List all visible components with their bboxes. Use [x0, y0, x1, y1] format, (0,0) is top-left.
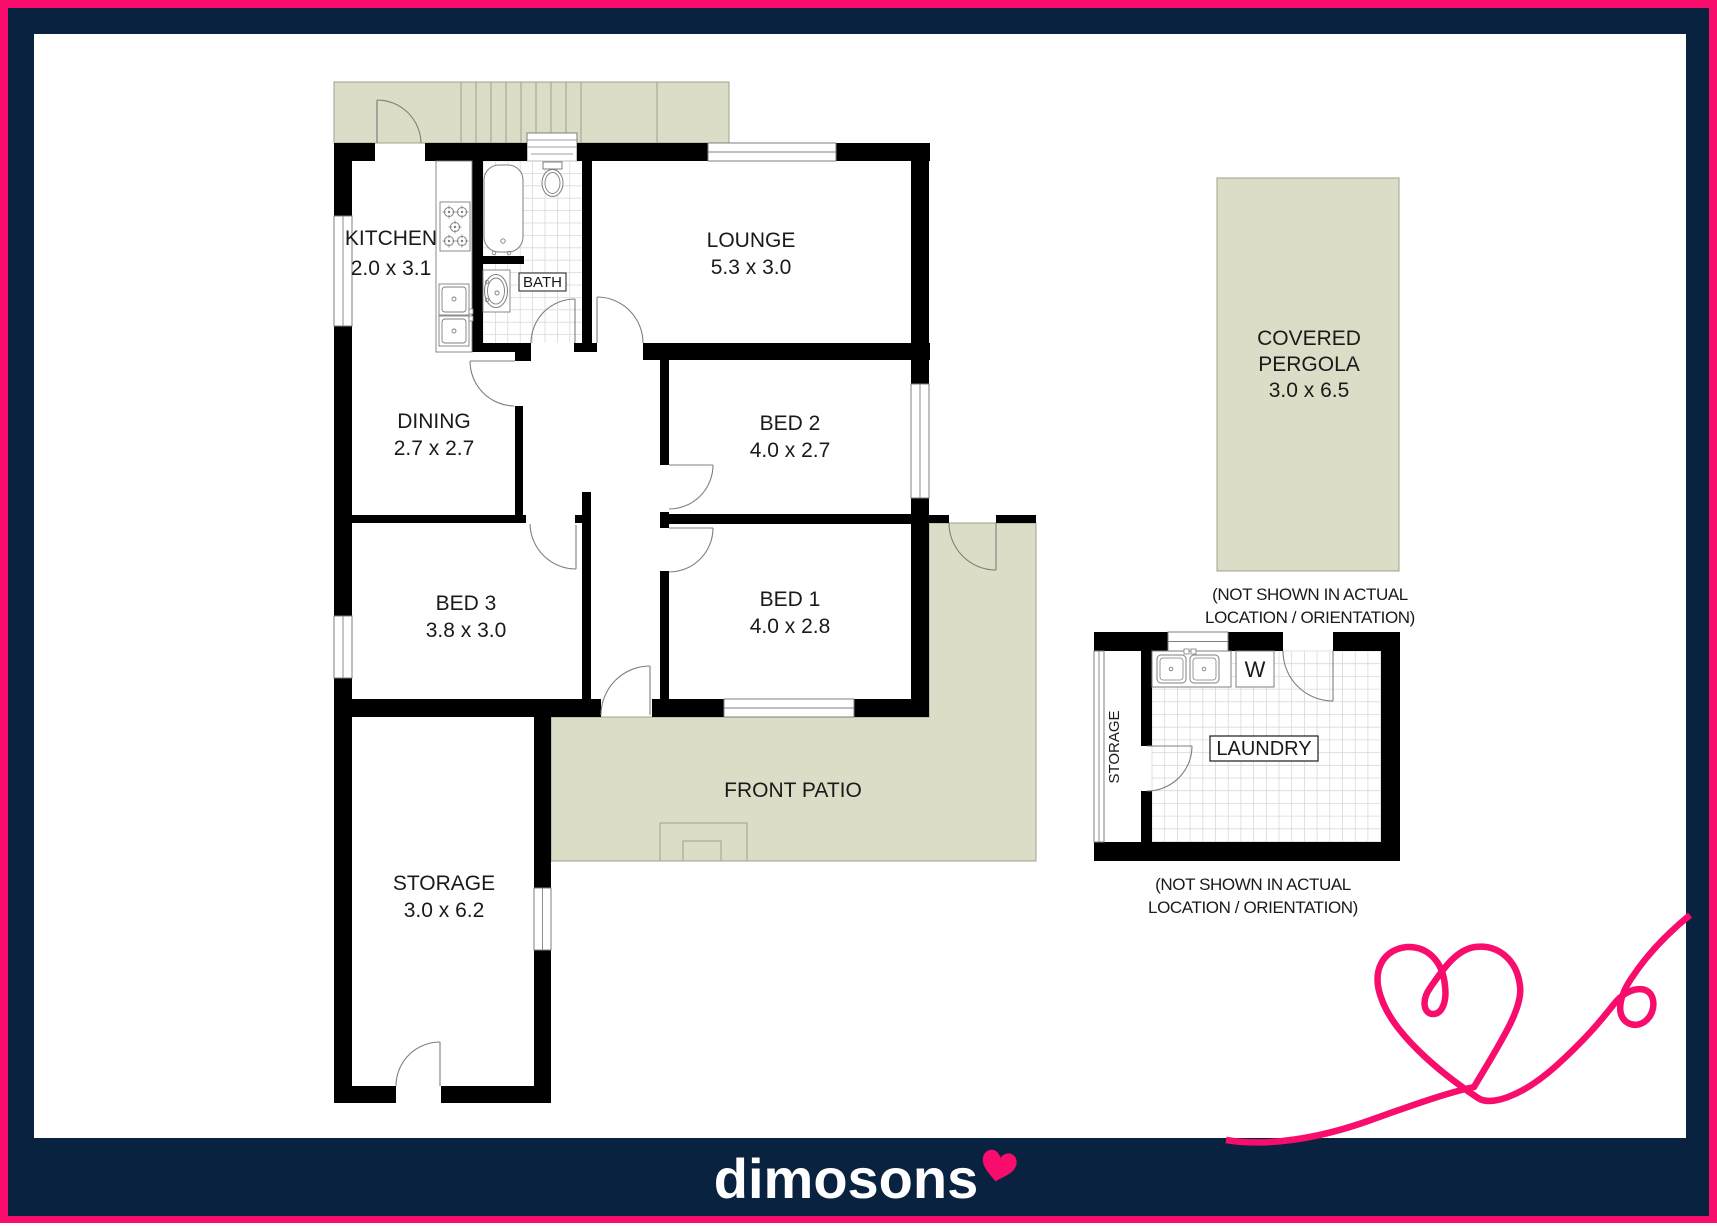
svg-text:COVERED: COVERED — [1257, 327, 1361, 350]
svg-text:4.0 x 2.7: 4.0 x 2.7 — [750, 439, 831, 462]
svg-text:BED 1: BED 1 — [760, 588, 821, 611]
svg-text:3.0 x 6.2: 3.0 x 6.2 — [404, 899, 485, 922]
svg-text:DINING: DINING — [397, 410, 471, 433]
svg-text:LOUNGE: LOUNGE — [707, 229, 796, 252]
svg-text:FRONT PATIO: FRONT PATIO — [724, 779, 862, 802]
svg-text:(NOT SHOWN IN ACTUAL: (NOT SHOWN IN ACTUAL — [1155, 875, 1351, 894]
svg-text:4.0 x 2.8: 4.0 x 2.8 — [750, 615, 831, 638]
svg-text:W: W — [1245, 657, 1266, 682]
svg-text:LAUNDRY: LAUNDRY — [1216, 738, 1311, 760]
svg-text:BATH: BATH — [523, 274, 562, 291]
svg-text:PERGOLA: PERGOLA — [1258, 353, 1360, 376]
svg-text:KITCHEN: KITCHEN — [345, 227, 437, 250]
svg-text:5.3 x 3.0: 5.3 x 3.0 — [711, 256, 792, 279]
svg-text:LOCATION / ORIENTATION): LOCATION / ORIENTATION) — [1205, 608, 1415, 627]
svg-text:2.7 x 2.7: 2.7 x 2.7 — [394, 437, 475, 460]
svg-text:STORAGE: STORAGE — [393, 872, 495, 895]
svg-text:3.8 x 3.0: 3.8 x 3.0 — [426, 619, 507, 642]
svg-text:(NOT SHOWN IN ACTUAL: (NOT SHOWN IN ACTUAL — [1212, 585, 1408, 604]
svg-text:BED 2: BED 2 — [760, 412, 821, 435]
svg-text:STORAGE: STORAGE — [1106, 710, 1123, 783]
svg-text:BED 3: BED 3 — [436, 592, 497, 615]
svg-text:2.0 x 3.1: 2.0 x 3.1 — [351, 257, 432, 280]
svg-text:dimosons: dimosons — [714, 1147, 978, 1210]
svg-text:3.0 x 6.5: 3.0 x 6.5 — [1269, 379, 1350, 402]
svg-text:LOCATION / ORIENTATION): LOCATION / ORIENTATION) — [1148, 898, 1358, 917]
